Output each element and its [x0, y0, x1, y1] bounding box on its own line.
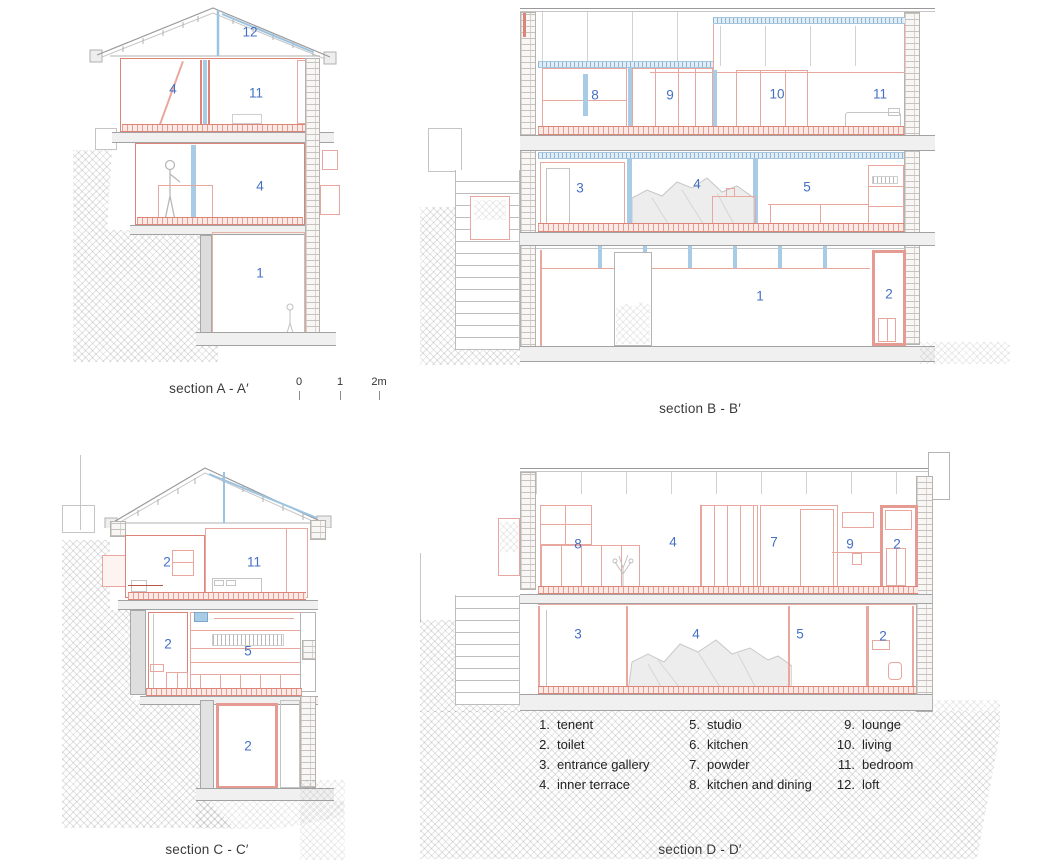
room-number: 2 — [163, 555, 171, 570]
shelf-line — [869, 206, 903, 207]
room-number: 2 — [879, 629, 887, 644]
legend: 1. tenent 2. toilet 3. entrance gallery … — [522, 714, 937, 794]
room-number: 2 — [164, 637, 172, 652]
mirror — [885, 510, 912, 530]
brick-wall — [520, 12, 536, 352]
floor-band — [538, 223, 904, 232]
hanger — [778, 246, 782, 268]
drawing-canvas: 12 4 11 4 1 section A - A′ 0 1 2m — [0, 0, 1050, 864]
scale-tick-label: 0 — [296, 376, 302, 388]
retaining-wall — [428, 128, 462, 172]
door-leaf — [546, 168, 570, 224]
partition — [788, 606, 790, 691]
room-number: 4 — [256, 179, 264, 194]
floor-band — [538, 586, 918, 594]
wall-marker — [523, 13, 526, 37]
partition-wall — [200, 60, 202, 130]
legend-number: 10. — [827, 737, 855, 752]
room-number: 7 — [770, 535, 778, 550]
brick-wall — [300, 696, 316, 788]
ground-slab — [520, 694, 932, 711]
legend-item: 4. inner terrace — [522, 774, 672, 794]
door-leaf — [546, 610, 547, 690]
legend-item: 11. bedroom — [827, 754, 937, 774]
legend-label: studio — [707, 717, 742, 732]
legend-label: kitchen — [707, 737, 748, 752]
legend-column-2: 5. studio 6. kitchen 7. powder 8. kitche… — [672, 714, 827, 794]
kitchen-upper-cabinets — [540, 505, 592, 545]
wardrobe-line — [695, 69, 696, 131]
wall-bracket — [322, 150, 338, 170]
room-number: 4 — [169, 82, 177, 97]
roof-svg — [88, 4, 338, 66]
section-b-label: section B - B′ — [635, 401, 765, 416]
sink — [852, 553, 862, 565]
ground-hatch — [920, 342, 1010, 364]
legend-label: kitchen and dining — [707, 777, 812, 792]
floor-slab — [520, 135, 935, 151]
scale-tick-label: 1 — [337, 376, 343, 388]
legend-column-3: 9. lounge 10. living 11. bedroom 12. lof… — [827, 714, 937, 794]
room-number: 4 — [669, 535, 677, 550]
room-number: 11 — [249, 86, 263, 101]
shower-screen — [153, 614, 154, 690]
foundation-slab — [196, 332, 336, 346]
bay-window — [102, 555, 126, 587]
retaining-wall — [130, 610, 146, 695]
window-mullion — [887, 319, 888, 341]
sliding-panels — [700, 505, 758, 592]
partition-line — [785, 71, 786, 131]
roof-svg — [103, 460, 333, 528]
wall-bracket — [320, 185, 340, 215]
legend-item: 3. entrance gallery — [522, 754, 672, 774]
exterior-stairs — [455, 595, 520, 705]
cabinet-line — [565, 506, 566, 544]
room-number: 5 — [244, 644, 252, 659]
sink — [150, 664, 164, 672]
insulation-band — [538, 61, 713, 68]
legend-number: 1. — [522, 717, 550, 732]
legend-item: 5. studio — [672, 714, 827, 734]
pillow — [888, 108, 900, 116]
legend-number: 3. — [522, 757, 550, 772]
wardrobe-line — [655, 69, 656, 131]
floor-band — [122, 124, 308, 132]
ceiling-red-line — [540, 268, 870, 269]
scale-tick — [340, 391, 341, 400]
powder-cabinet — [800, 509, 834, 588]
legend-number: 11. — [827, 757, 855, 772]
shelf-line — [191, 630, 301, 631]
room-number: 11 — [247, 555, 261, 570]
legend-item: 9. lounge — [827, 714, 937, 734]
lounge-shelf — [842, 512, 874, 528]
legend-item: 6. kitchen — [672, 734, 827, 754]
room-number: 11 — [873, 87, 887, 102]
insulation-strip — [203, 60, 207, 130]
scale-tick-label: 2m — [371, 376, 386, 388]
room-number: 2 — [893, 537, 901, 552]
legend-label: powder — [707, 757, 750, 772]
partition — [866, 606, 869, 691]
partition-wall — [208, 60, 210, 130]
legend-label: living — [862, 737, 892, 752]
pillow — [214, 580, 224, 586]
eave-wall — [110, 521, 126, 537]
legend-label: entrance gallery — [557, 757, 650, 772]
hanger-rods — [542, 12, 707, 64]
floor-slab — [118, 600, 318, 610]
room-number: 1 — [256, 266, 264, 281]
ground-hatch — [455, 705, 520, 712]
floor-slab — [112, 132, 334, 143]
section-a-label: section A - A′ — [144, 381, 274, 396]
ceiling-line — [538, 604, 916, 607]
basement-wall — [200, 700, 214, 790]
room-number: 1 — [756, 289, 764, 304]
retaining-line — [420, 553, 421, 623]
wardrobe-line — [678, 69, 679, 131]
legend-number: 9. — [827, 717, 855, 732]
room-number: 3 — [576, 181, 584, 196]
room-number: 8 — [574, 537, 582, 552]
wall-line — [538, 606, 540, 690]
room-number: 8 — [591, 88, 599, 103]
legend-item: 1. tenent — [522, 714, 672, 734]
floor-band — [538, 126, 904, 135]
toilet — [888, 662, 902, 680]
human-figure — [283, 303, 297, 335]
window-mullion — [896, 549, 897, 585]
neighbor-structure — [62, 505, 95, 533]
brick-wall — [305, 58, 320, 334]
floor-band — [146, 688, 302, 696]
rock-through-window — [616, 300, 650, 344]
room-number: 10 — [769, 87, 784, 102]
books — [872, 176, 898, 184]
section-d-label: section D - D′ — [635, 842, 765, 857]
wardrobe — [286, 528, 308, 598]
legend-label: lounge — [862, 717, 901, 732]
room-number: 4 — [693, 177, 701, 192]
legend-number: 4. — [522, 777, 550, 792]
ceiling-insulation — [538, 152, 904, 159]
table — [232, 114, 262, 124]
legend-label: loft — [862, 777, 879, 792]
room-number: 4 — [692, 627, 700, 642]
room-number: 2 — [244, 739, 252, 754]
legend-label: bedroom — [862, 757, 913, 772]
room-number: 3 — [574, 627, 582, 642]
wall-line — [540, 250, 542, 346]
legend-number: 2. — [522, 737, 550, 752]
table-line — [173, 562, 193, 563]
ground-slab — [520, 346, 935, 362]
legend-number: 8. — [672, 777, 700, 792]
table — [172, 550, 194, 576]
room-number: 9 — [846, 537, 854, 552]
insulation-strip — [628, 68, 632, 132]
grab-bar — [128, 585, 163, 586]
pillow — [226, 580, 236, 586]
legend-item: 7. powder — [672, 754, 827, 774]
hanger — [598, 246, 602, 268]
toilet — [131, 580, 147, 592]
brick-pier — [302, 640, 316, 660]
legend-number: 6. — [672, 737, 700, 752]
upper-floor-walls — [120, 58, 310, 132]
room-number: 9 — [666, 88, 674, 103]
legend-label: tenent — [557, 717, 593, 732]
hanger-rods — [536, 472, 916, 494]
legend-number: 12. — [827, 777, 855, 792]
lamp — [726, 188, 735, 197]
ground-hatch — [420, 620, 456, 712]
shelf-unit — [868, 165, 904, 228]
cabinet-line — [541, 524, 591, 525]
legend-number: 5. — [672, 717, 700, 732]
insulation-strip — [713, 70, 717, 132]
shelf-line — [191, 662, 301, 663]
legend-item: 8. kitchen and dining — [672, 774, 827, 794]
room-number: 2 — [885, 287, 893, 302]
scale-tick — [299, 391, 300, 400]
brick-wall — [904, 12, 920, 345]
dimension-line — [214, 618, 294, 619]
floor-band — [128, 592, 306, 600]
ground-hatch — [300, 780, 345, 860]
ceiling-line — [536, 248, 906, 249]
plants — [474, 200, 506, 220]
floor-band — [137, 217, 303, 225]
floor-slab — [520, 594, 932, 604]
plants — [500, 522, 518, 552]
section-c-label: section C - C′ — [142, 842, 272, 857]
insulation-strip — [583, 74, 588, 116]
vent-unit — [194, 612, 208, 622]
desk-line — [768, 204, 868, 205]
brick-wall — [520, 472, 536, 590]
hanger — [733, 246, 737, 268]
room-number: 12 — [242, 25, 257, 40]
floor-slab — [520, 232, 935, 246]
basement-wall — [200, 235, 212, 335]
wall-line — [912, 606, 914, 691]
legend-item: 10. living — [827, 734, 937, 754]
legend-item: 12. loft — [827, 774, 937, 794]
legend-number: 7. — [672, 757, 700, 772]
legend-label: toilet — [557, 737, 584, 752]
ground-hatch — [933, 700, 1000, 711]
partition-line — [760, 71, 761, 131]
room-number: 5 — [803, 180, 811, 195]
hanger-rods — [720, 26, 900, 66]
eave-wall — [310, 520, 326, 540]
scale-tick — [379, 391, 380, 400]
legend-column-1: 1. tenent 2. toilet 3. entrance gallery … — [522, 714, 672, 794]
side-column — [280, 700, 300, 788]
shelf-line — [869, 186, 903, 187]
rock-terrain — [628, 632, 792, 692]
floor-band — [538, 686, 916, 694]
hanger — [688, 246, 692, 268]
legend-item: 2. toilet — [522, 734, 672, 754]
legend-label: inner terrace — [557, 777, 630, 792]
hanger — [823, 246, 827, 268]
insulation-band — [713, 17, 905, 24]
room-number: 5 — [796, 627, 804, 642]
